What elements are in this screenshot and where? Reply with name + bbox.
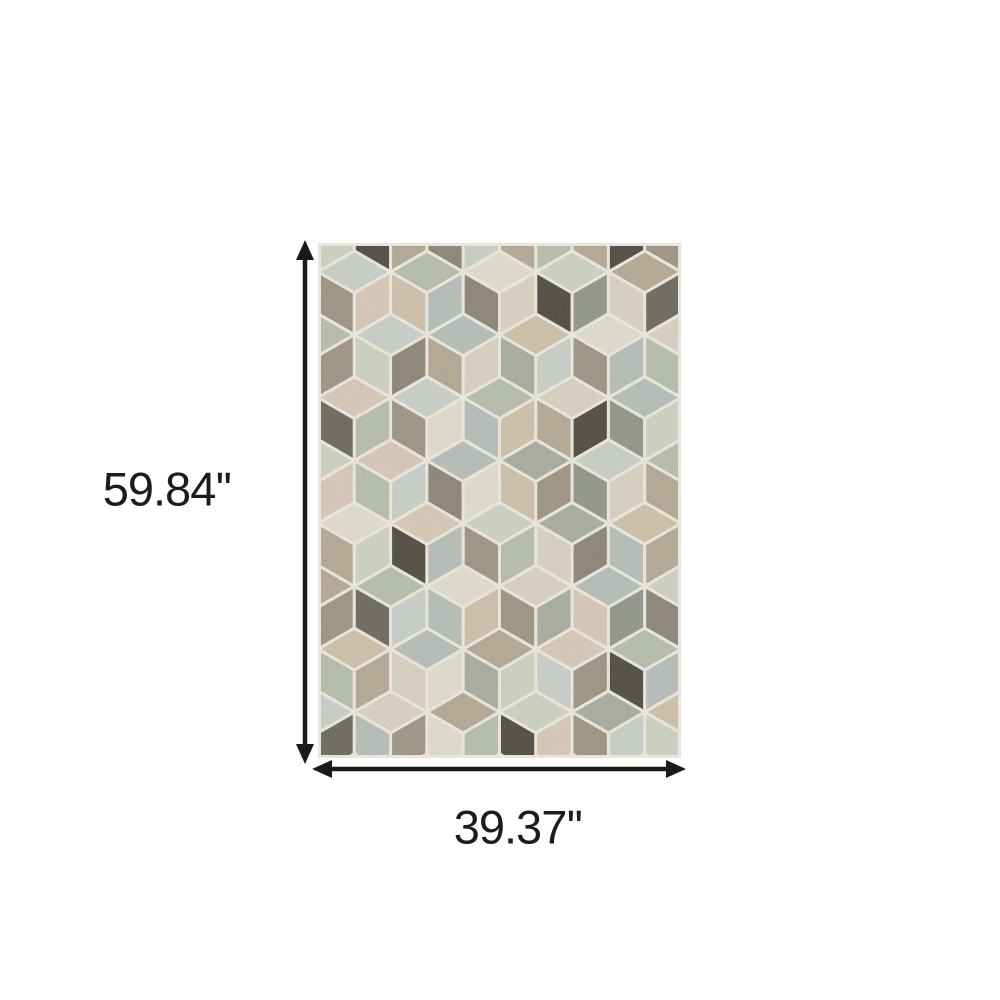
width-dimension-label: 39.37'' (454, 800, 583, 855)
height-dimension-label: 59.84'' (103, 462, 232, 517)
height-dimension-arrow (296, 240, 314, 764)
product-dimension-image: 59.84'' 39.37'' (0, 0, 1000, 1000)
width-dimension-arrow (312, 760, 686, 778)
rug-cube-pattern (318, 243, 681, 758)
rug-product-photo (318, 243, 681, 758)
